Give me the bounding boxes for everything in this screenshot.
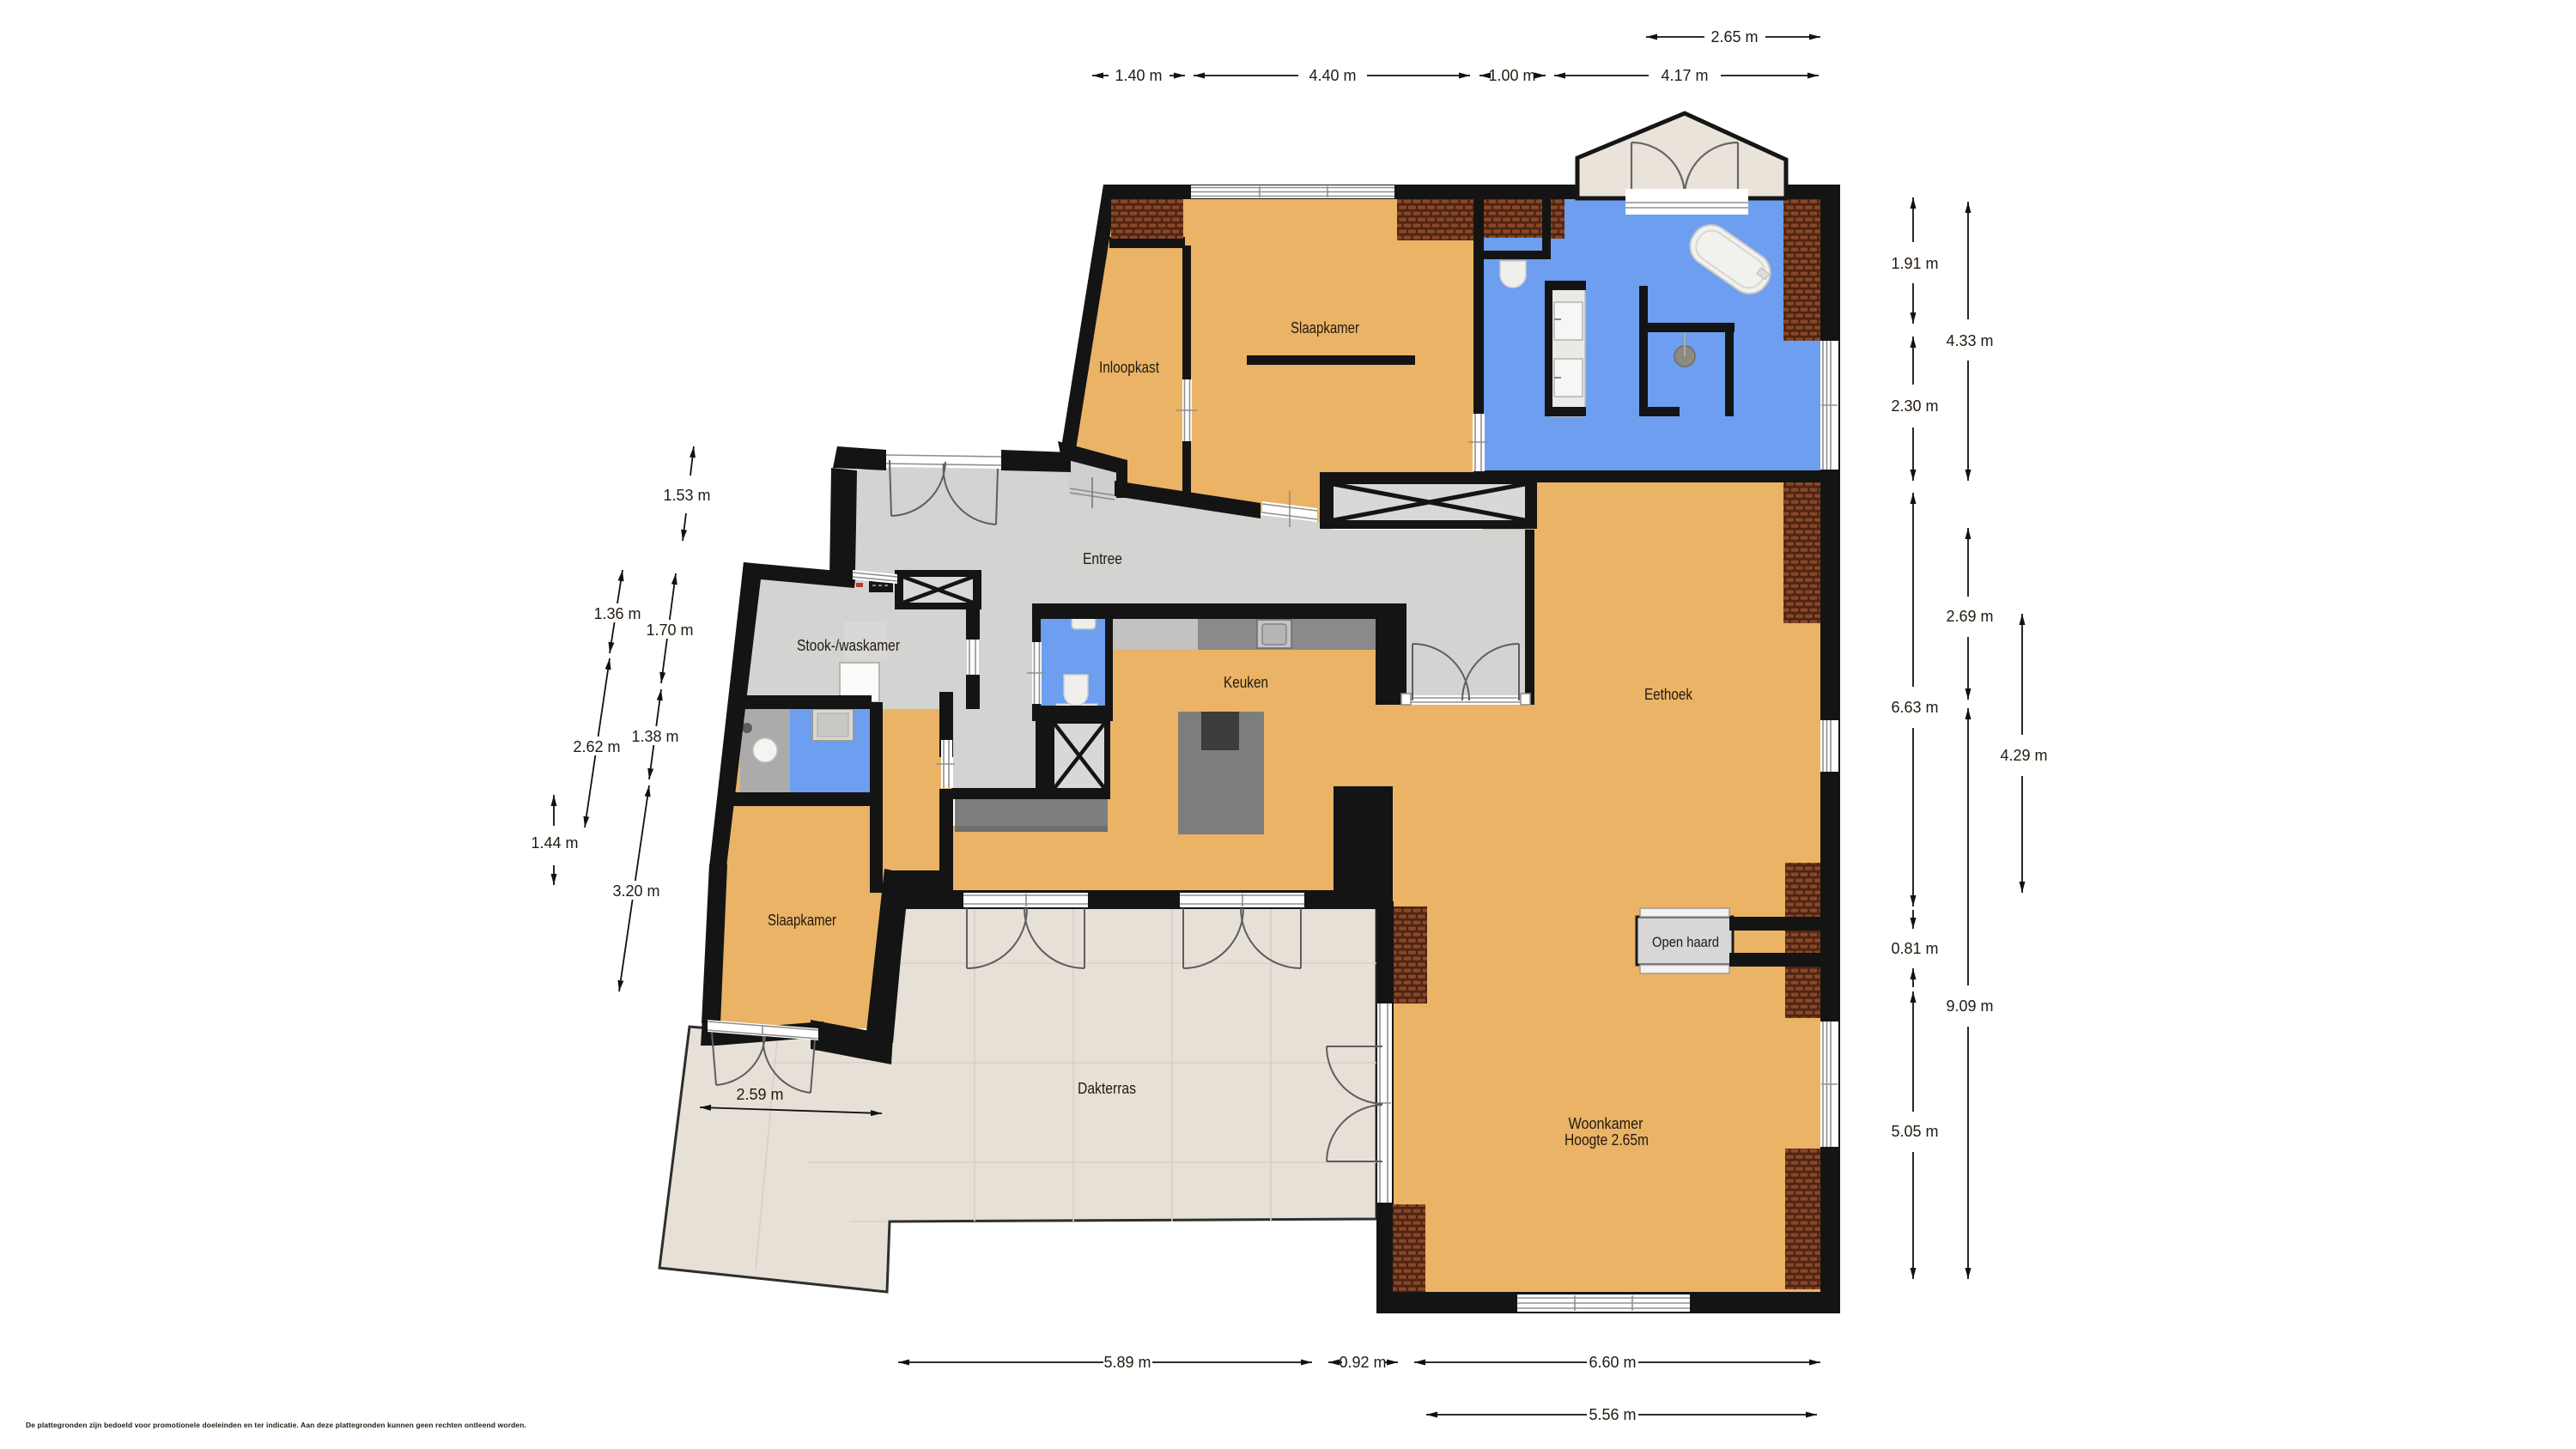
svg-text:3.20 m: 3.20 m — [612, 882, 659, 900]
svg-text:2.62 m: 2.62 m — [573, 738, 620, 755]
svg-text:1.44 m: 1.44 m — [531, 834, 578, 852]
svg-text:2.59 m: 2.59 m — [736, 1086, 783, 1103]
svg-text:4.29 m: 4.29 m — [2000, 747, 2047, 764]
svg-text:6.63 m: 6.63 m — [1891, 699, 1938, 716]
svg-text:1.40 m: 1.40 m — [1115, 67, 1162, 84]
svg-text:Stook-/waskamer: Stook-/waskamer — [797, 637, 900, 654]
svg-text:Slaapkamer: Slaapkamer — [1291, 319, 1359, 336]
svg-text:1.00 m: 1.00 m — [1488, 67, 1535, 84]
svg-text:Eethoek: Eethoek — [1644, 686, 1693, 703]
svg-text:9.09 m: 9.09 m — [1946, 997, 1993, 1015]
svg-text:0.81 m: 0.81 m — [1891, 940, 1938, 957]
svg-text:4.17 m: 4.17 m — [1661, 67, 1708, 84]
svg-text:Entree: Entree — [1083, 550, 1122, 567]
svg-text:Inloopkast: Inloopkast — [1099, 359, 1159, 376]
svg-text:1.53 m: 1.53 m — [663, 487, 710, 504]
svg-text:Open haard: Open haard — [1652, 934, 1719, 950]
svg-text:Woonkamer: Woonkamer — [1569, 1115, 1643, 1132]
svg-text:4.33 m: 4.33 m — [1946, 332, 1993, 349]
svg-text:1.36 m: 1.36 m — [593, 605, 641, 622]
svg-text:2.30 m: 2.30 m — [1891, 397, 1938, 415]
svg-text:De plattegronden zijn bedoeld: De plattegronden zijn bedoeld voor promo… — [26, 1421, 526, 1429]
svg-text:Dakterras: Dakterras — [1078, 1080, 1136, 1097]
svg-text:Keuken: Keuken — [1224, 674, 1268, 691]
svg-text:5.05 m: 5.05 m — [1891, 1123, 1938, 1140]
svg-text:6.60 m: 6.60 m — [1589, 1354, 1636, 1371]
svg-text:Slaapkamer: Slaapkamer — [768, 912, 836, 929]
svg-text:0.92 m: 0.92 m — [1339, 1354, 1386, 1371]
svg-text:1.70 m: 1.70 m — [646, 621, 693, 639]
svg-text:Hoogte 2.65m: Hoogte 2.65m — [1564, 1131, 1649, 1149]
svg-text:5.56 m: 5.56 m — [1589, 1406, 1636, 1423]
svg-text:2.65 m: 2.65 m — [1710, 28, 1758, 45]
svg-text:1.38 m: 1.38 m — [631, 728, 678, 745]
svg-text:4.40 m: 4.40 m — [1309, 67, 1356, 84]
svg-text:2.69 m: 2.69 m — [1946, 608, 1993, 625]
svg-text:5.89 m: 5.89 m — [1103, 1354, 1151, 1371]
svg-text:1.91 m: 1.91 m — [1891, 255, 1938, 272]
